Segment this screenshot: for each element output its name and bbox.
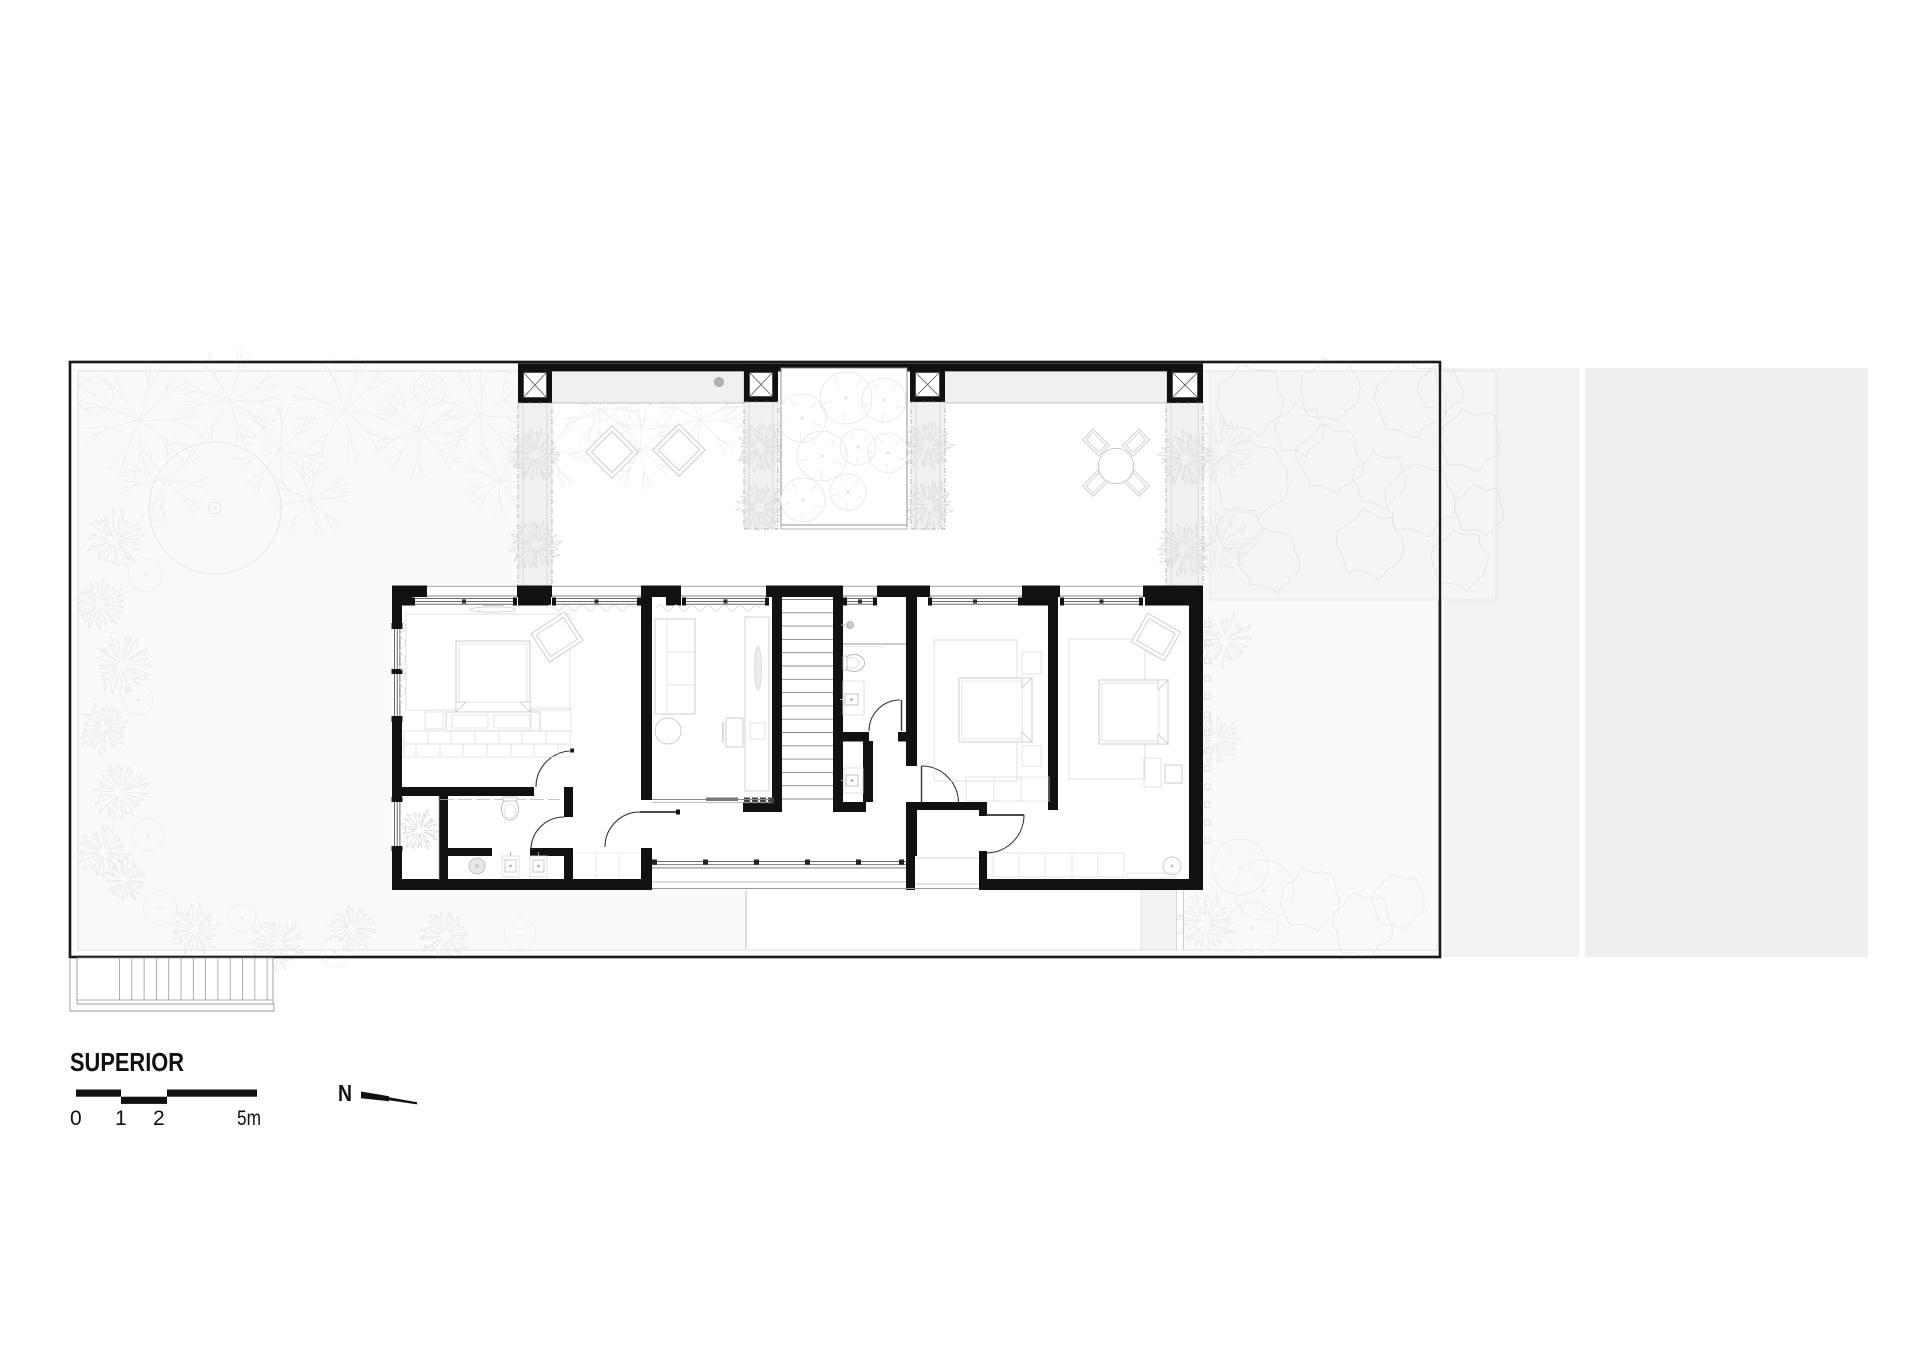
svg-text:N: N bbox=[338, 1080, 352, 1106]
svg-text:0: 0 bbox=[70, 1107, 82, 1130]
svg-text:1: 1 bbox=[115, 1107, 127, 1130]
svg-text:SUPERIOR: SUPERIOR bbox=[70, 1049, 184, 1077]
svg-text:2: 2 bbox=[153, 1107, 165, 1130]
svg-text:5m: 5m bbox=[237, 1107, 261, 1130]
